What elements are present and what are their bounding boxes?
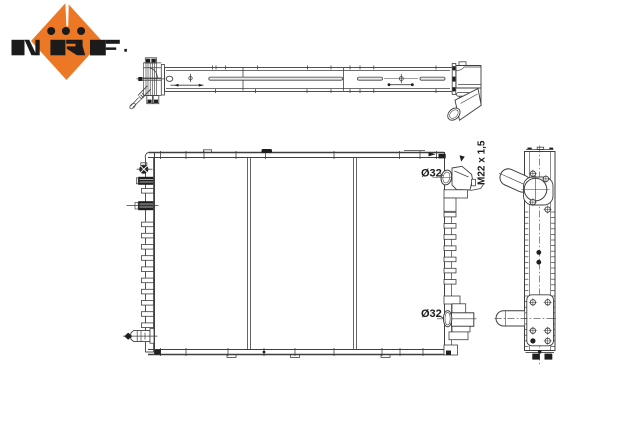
svg-text:Ø32: Ø32 [421,168,442,180]
svg-text:Ø32: Ø32 [421,308,442,320]
svg-text:M22 x 1,5: M22 x 1,5 [477,140,488,185]
